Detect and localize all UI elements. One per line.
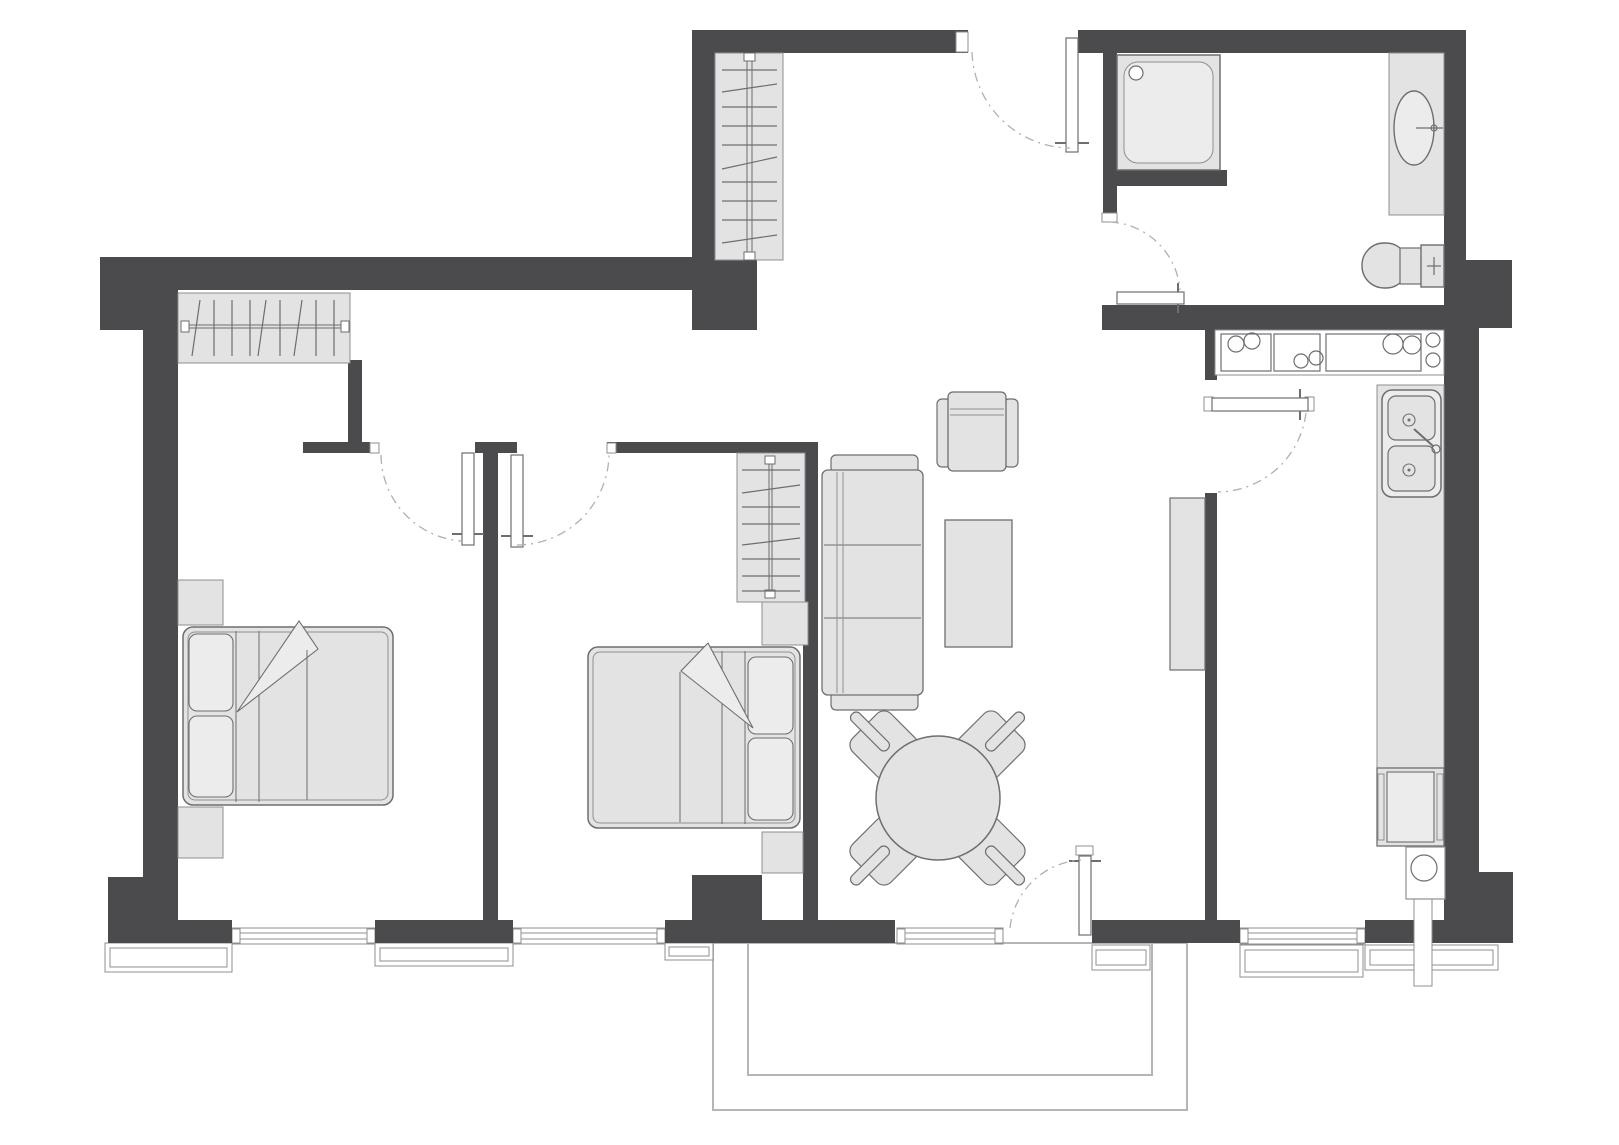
door-kitchen: [1212, 389, 1308, 492]
shower: [1117, 55, 1220, 170]
window-bedroom-1: [232, 928, 375, 944]
door-bedroom-2: [501, 455, 609, 547]
tv-cabinet: [1170, 498, 1205, 670]
armchair: [937, 392, 1018, 471]
kitchen-appliance: [1377, 768, 1444, 846]
closet-bedroom-1: [178, 293, 350, 363]
door-entrance: [972, 38, 1089, 152]
door-balcony: [1010, 856, 1101, 935]
balcony-fixed-panel: [897, 928, 1003, 944]
window-bedroom-2: [513, 928, 665, 944]
door-bathroom: [1110, 222, 1184, 313]
walls: [100, 30, 1513, 943]
floor-plan-page: [0, 0, 1619, 1145]
kitchen-counter-top: [1215, 330, 1444, 375]
kitchen-counter-right: [1377, 385, 1444, 768]
bed-2: [588, 643, 803, 873]
floor-plan-canvas: [0, 0, 1619, 1145]
closet-bedroom-2: [737, 453, 805, 602]
door-bedroom-1: [381, 453, 484, 545]
window-kitchen: [1240, 928, 1365, 944]
coffee-table: [945, 520, 1012, 647]
dining-table: [876, 736, 1000, 860]
bathroom-sink: [1389, 53, 1444, 215]
cabinet-bedroom-2: [762, 602, 808, 645]
toilet: [1362, 243, 1444, 288]
closet-hallway: [715, 53, 783, 260]
sofa: [822, 455, 923, 710]
bed-1: [178, 580, 393, 858]
window-sills: [105, 943, 1498, 977]
